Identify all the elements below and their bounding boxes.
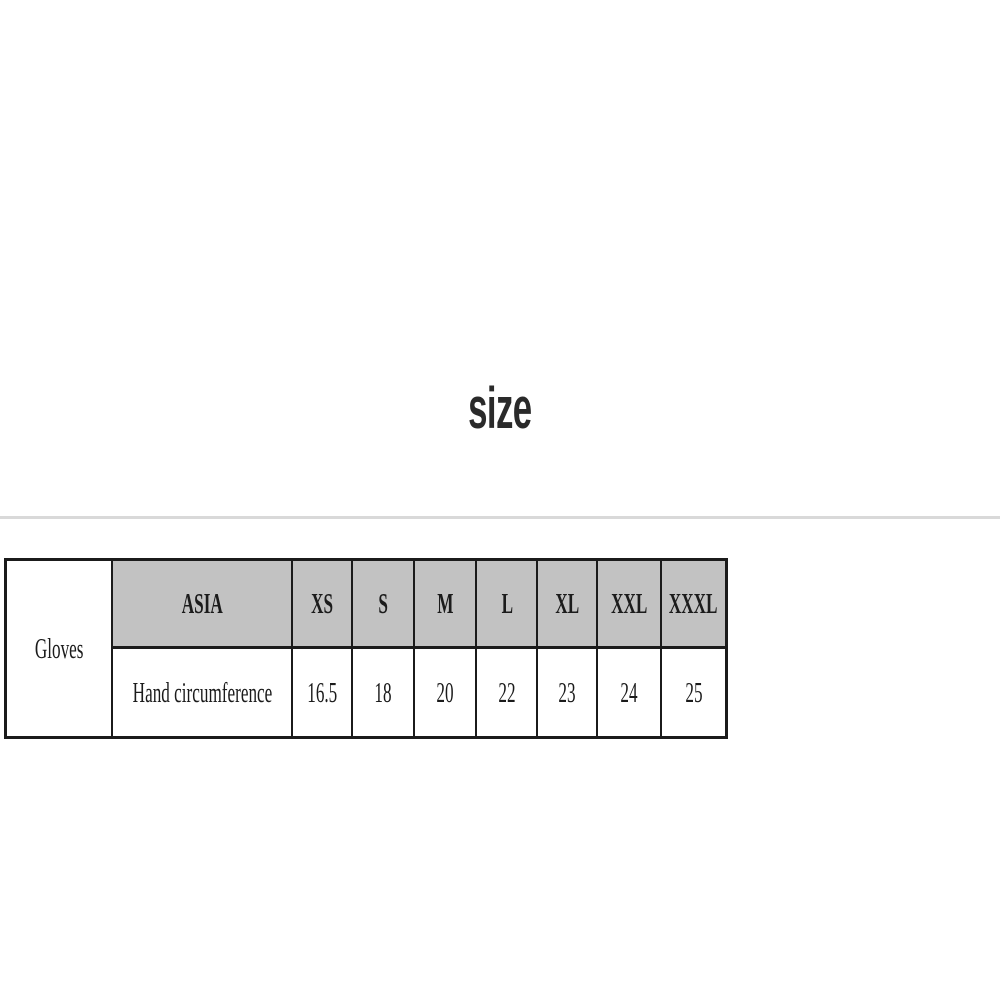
size-header-cell-xl: XL	[537, 560, 597, 648]
measurement-value: 25	[685, 675, 702, 709]
measurement-value: 24	[621, 675, 638, 709]
measurement-value: 23	[559, 675, 576, 709]
size-header-cell-xs: XS	[292, 560, 352, 648]
measurement-value-cell-xxxl: 25	[661, 648, 726, 738]
size-header-label: XS	[311, 586, 333, 620]
measurement-label: Hand circumference	[132, 675, 272, 709]
section-divider	[0, 516, 1000, 519]
size-header-label: S	[379, 586, 389, 620]
size-header-cell-m: M	[414, 560, 476, 648]
measurement-value: 18	[375, 675, 392, 709]
size-header-label: XL	[556, 586, 580, 620]
measurement-value-cell-s: 18	[352, 648, 414, 738]
table-data-row: Hand circumference 16.5 18 20 22 23 24 2…	[6, 648, 727, 738]
size-header-label: XXL	[611, 586, 647, 620]
size-header-cell-s: S	[352, 560, 414, 648]
category-label: Gloves	[34, 631, 83, 665]
size-header-cell-xxl: XXL	[597, 560, 661, 648]
measurement-value: 16.5	[307, 675, 337, 709]
measurement-value: 22	[498, 675, 515, 709]
measurement-value-cell-xs: 16.5	[292, 648, 352, 738]
size-header-label: XXXL	[669, 586, 718, 620]
measurement-label-cell: Hand circumference	[112, 648, 293, 738]
measurement-value: 20	[437, 675, 454, 709]
size-header-label: M	[437, 586, 453, 620]
size-header-cell-xxxl: XXXL	[661, 560, 726, 648]
page-title-text: size	[468, 380, 531, 438]
page-title: size	[0, 380, 1000, 438]
measurement-value-cell-xxl: 24	[597, 648, 661, 738]
measurement-value-cell-xl: 23	[537, 648, 597, 738]
measurement-value-cell-l: 22	[476, 648, 537, 738]
size-header-label: L	[501, 586, 512, 620]
category-cell: Gloves	[6, 560, 112, 738]
region-header-label: ASIA	[181, 586, 222, 620]
measurement-value-cell-m: 20	[414, 648, 476, 738]
size-chart-table: Gloves ASIA XS S M L XL XXL XXXL Hand ci…	[4, 558, 728, 739]
region-header-cell: ASIA	[112, 560, 293, 648]
size-header-cell-l: L	[476, 560, 537, 648]
table-header-row: Gloves ASIA XS S M L XL XXL XXXL	[6, 560, 727, 648]
